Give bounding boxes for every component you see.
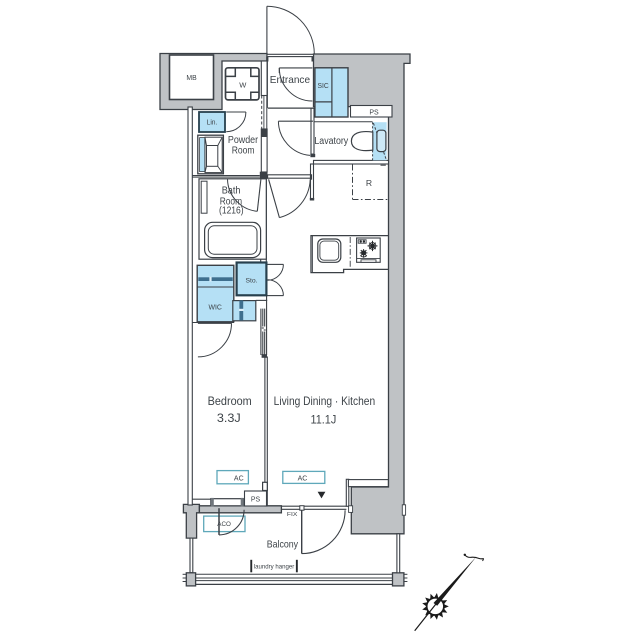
svg-text:PS: PS: [251, 497, 261, 504]
svg-text:Lavatory: Lavatory: [314, 136, 348, 147]
svg-text:SIC: SIC: [318, 83, 329, 90]
svg-text:Living Dining · Kitchen: Living Dining · Kitchen: [274, 394, 376, 408]
svg-text:MB: MB: [186, 75, 197, 82]
svg-text:FIX: FIX: [287, 512, 298, 518]
svg-text:PS: PS: [369, 110, 379, 117]
svg-text:(1216): (1216): [219, 206, 244, 217]
svg-text:11.1J: 11.1J: [311, 412, 337, 426]
svg-text:Room: Room: [232, 145, 255, 156]
svg-text:Entrance: Entrance: [270, 74, 310, 86]
svg-text:3.3J: 3.3J: [217, 411, 241, 425]
svg-text:Balcony: Balcony: [267, 540, 299, 551]
svg-text:Sto.: Sto.: [245, 278, 257, 285]
svg-text:Bath: Bath: [222, 186, 241, 197]
svg-text:AC: AC: [234, 475, 244, 482]
svg-text:laundry hanger: laundry hanger: [254, 564, 295, 571]
svg-text:Bedroom: Bedroom: [208, 394, 252, 408]
svg-text:W: W: [239, 80, 247, 89]
svg-text:R: R: [366, 178, 372, 188]
svg-text:Lin.: Lin.: [207, 119, 218, 126]
svg-text:WIC: WIC: [209, 304, 222, 311]
svg-text:AC: AC: [298, 475, 308, 482]
